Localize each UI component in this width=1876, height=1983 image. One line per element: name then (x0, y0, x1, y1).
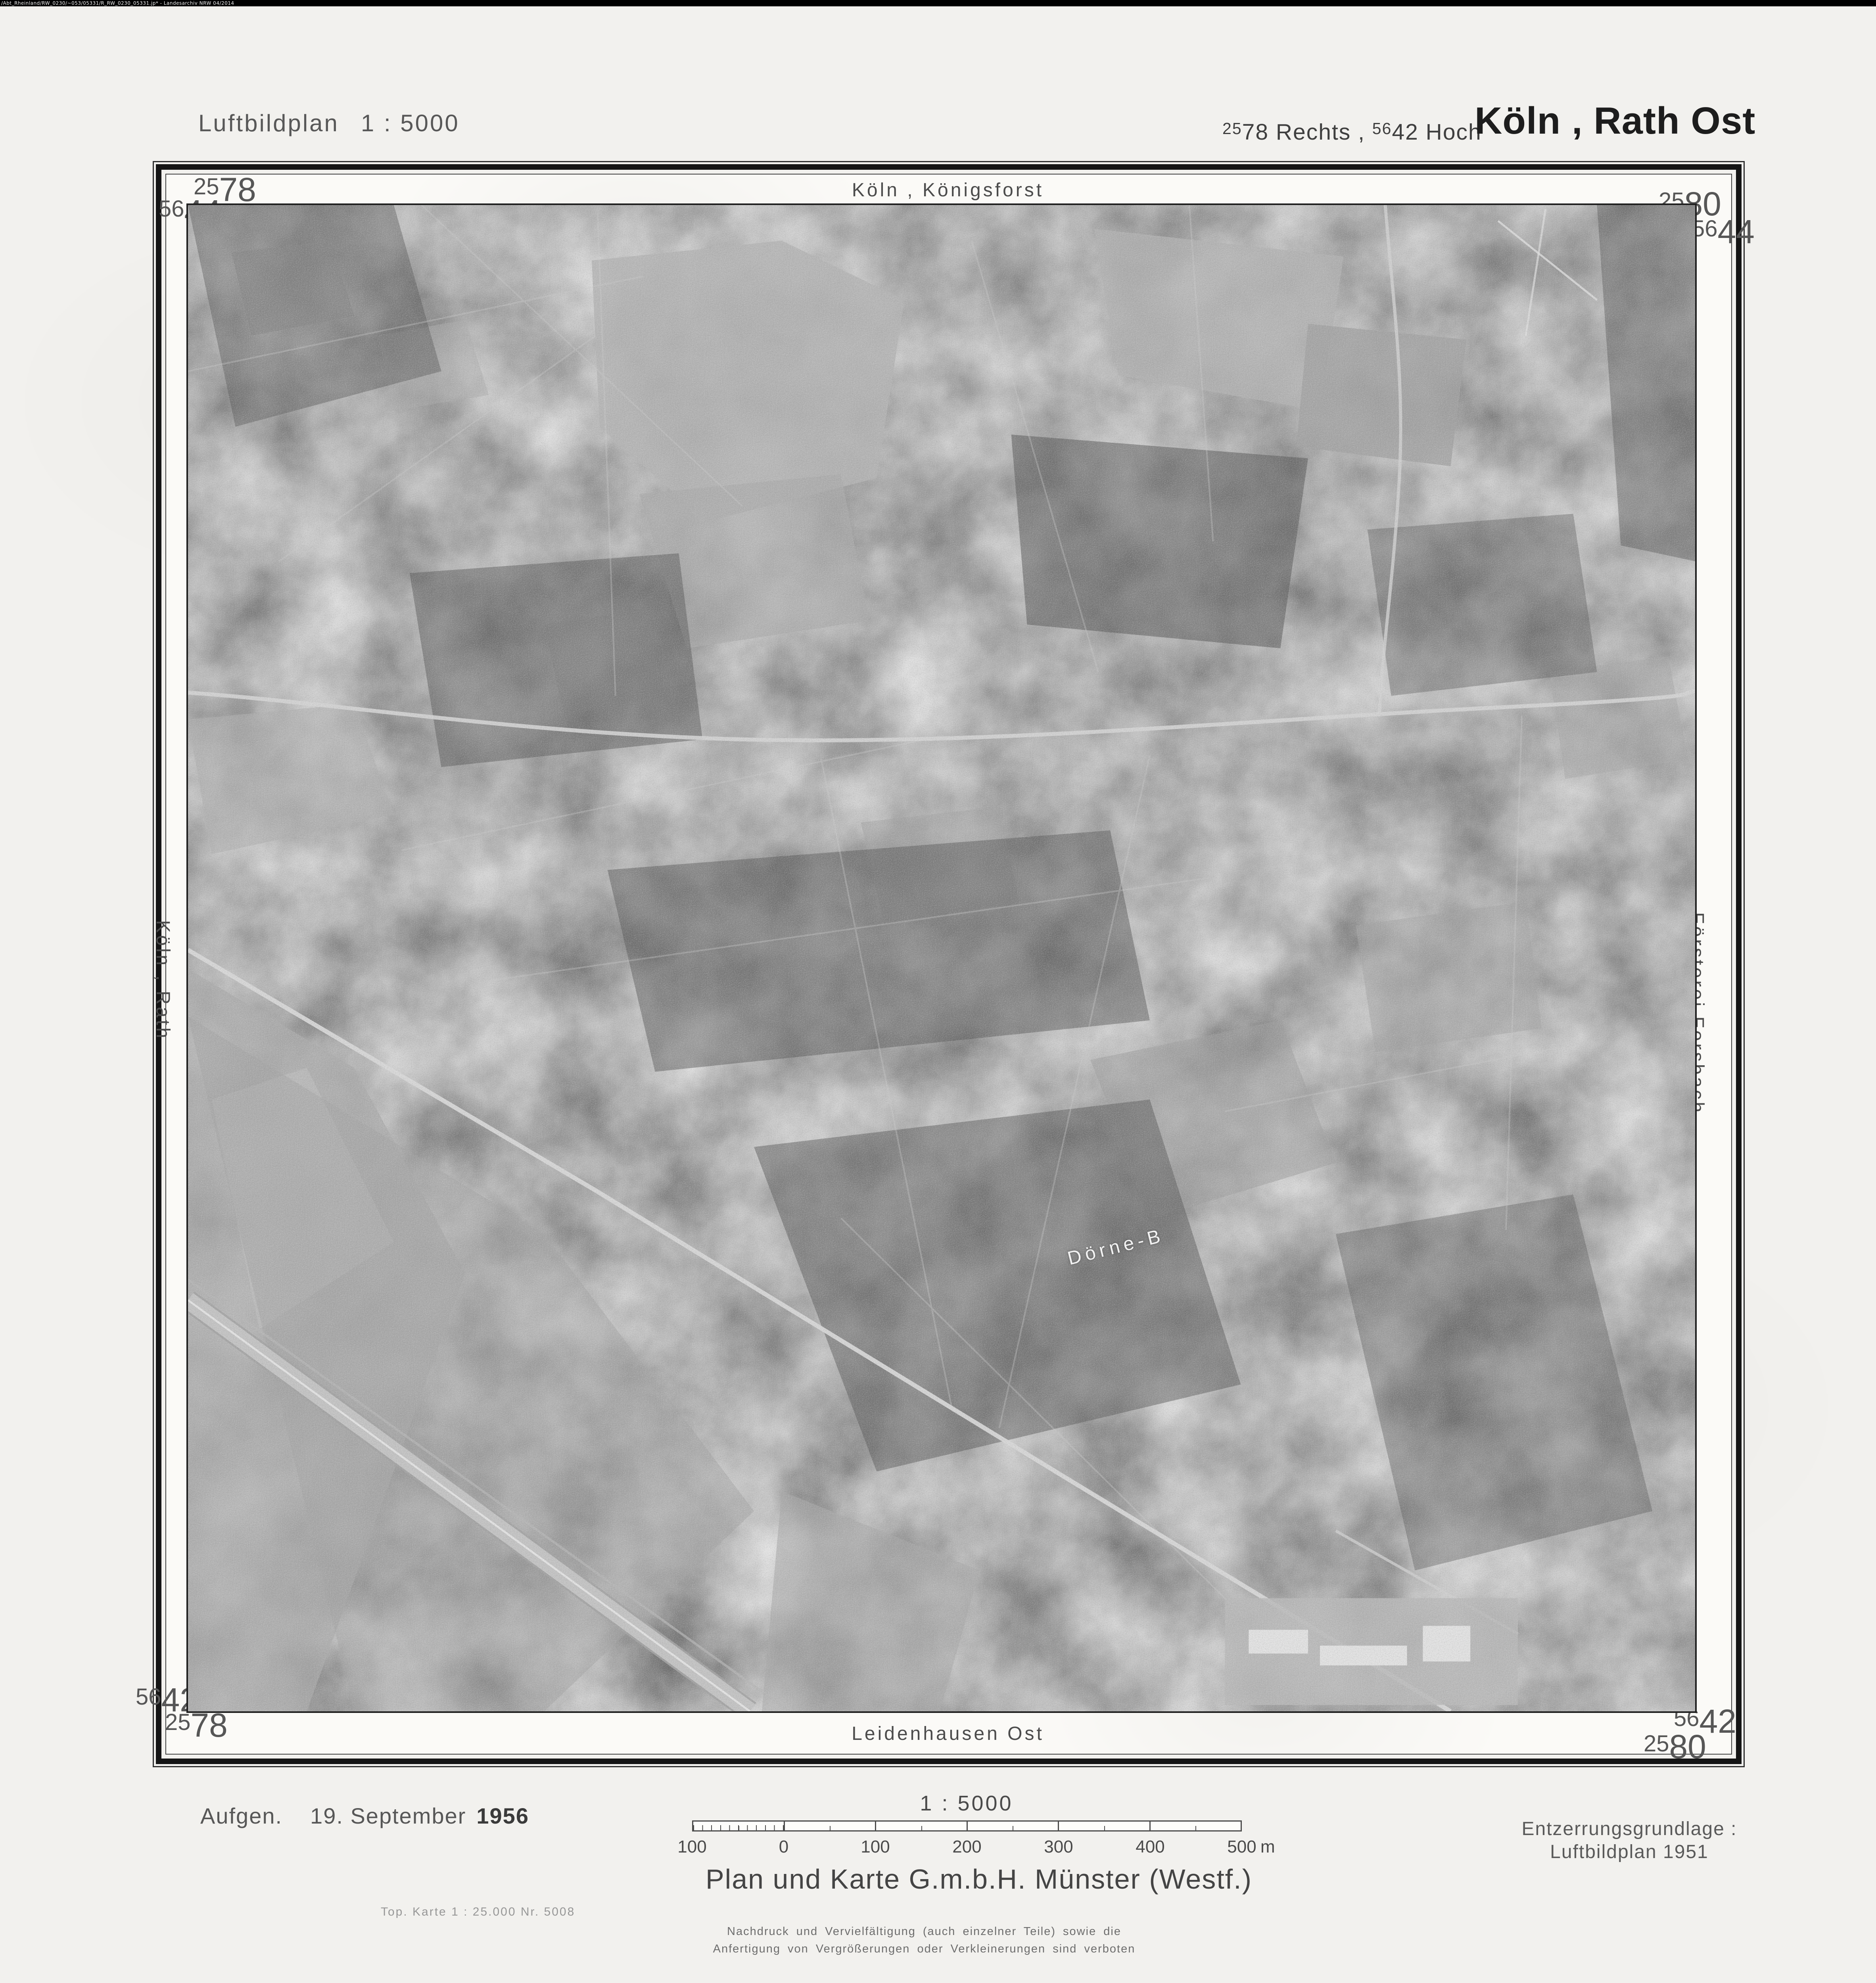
coord-sup: 56 (159, 196, 184, 222)
coord-main: 80 (1669, 1728, 1706, 1765)
scale-bar-segment (1059, 1822, 1151, 1830)
rectification-note-line2: Luftbildplan 1951 (1550, 1841, 1709, 1863)
edge-label-left: Köln , Rath (152, 920, 174, 1040)
survey-date: Aufgen.19. September1956 (200, 1803, 529, 1829)
topo-map-reference: Top. Karte 1 : 25.000 Nr. 5008 (381, 1905, 575, 1919)
aerial-photo: Dörne-B (186, 203, 1697, 1713)
corner-coord-bottom-right-rechts: 2580 (1644, 1728, 1706, 1766)
grid-hoch-sup: 56 (1372, 119, 1392, 138)
coord-sup: 25 (165, 1710, 190, 1735)
scale-tick-label: 200 (952, 1837, 981, 1857)
scale-bar-segment (968, 1822, 1059, 1830)
scale-tick-label: 400 (1136, 1837, 1164, 1857)
date-main: 19. September (310, 1803, 466, 1828)
publisher-imprint: Plan und Karte G.m.b.H. Münster (Westf.) (706, 1863, 1252, 1895)
scale-bar-segment (785, 1822, 877, 1830)
grid-rechts-main: 78 Rechts , (1242, 119, 1365, 145)
grid-hoch-main: 42 Hoch (1392, 119, 1481, 145)
scale-tick-label: 100 (861, 1837, 890, 1857)
scale-ratio-label: 1 : 5000 (920, 1791, 1013, 1816)
scan-info-bar: /Abt_Rheinland/RW_0230/~053/05331/R_RW_0… (0, 0, 1876, 6)
edge-label-top: Köln , Königsforst (852, 179, 1044, 201)
scale-bar-segment (693, 1822, 785, 1830)
coord-sup: 25 (1644, 1731, 1669, 1757)
scan-path-text: /Abt_Rheinland/RW_0230/~053/05331/R_RW_0… (1, 0, 234, 6)
scale-bar (692, 1820, 1242, 1831)
date-year: 1956 (476, 1803, 529, 1828)
series-scale: 1 : 5000 (361, 110, 460, 136)
grid-rechts-sup: 25 (1222, 119, 1242, 138)
scanned-map-sheet: { "scan_bar": { "path_text": "/Abt_Rhein… (0, 0, 1876, 1983)
copyright-notice: Nachdruck und Vervielfältigung (auch ein… (713, 1923, 1136, 1958)
copyright-line1: Nachdruck und Vervielfältigung (auch ein… (727, 1925, 1121, 1938)
coord-main: 44 (1717, 213, 1754, 250)
corner-coord-top-right-hoch: 5644 (1692, 213, 1755, 251)
coord-sup: 56 (136, 1684, 161, 1710)
aerial-photo-graphic (188, 205, 1695, 1711)
date-prefix: Aufgen. (200, 1803, 282, 1828)
grid-reference: 2578 Rechts , 5642 Hoch (1222, 119, 1482, 145)
scale-tick-label: 100 (677, 1837, 706, 1857)
rectification-note-line1: Entzerrungsgrundlage : (1522, 1818, 1737, 1840)
scale-bar-segment (1151, 1822, 1241, 1830)
film-grain (188, 205, 1695, 1711)
coord-main: 78 (219, 171, 256, 208)
scale-unit-label: m (1260, 1837, 1275, 1857)
scale-tick-label: 300 (1044, 1837, 1073, 1857)
scale-tick-label: 0 (779, 1837, 788, 1857)
scale-tick-label: 500 (1227, 1837, 1256, 1857)
edge-label-bottom: Leidenhausen Ost (852, 1723, 1044, 1745)
copyright-line2: Anfertigung von Vergrößerungen oder Verk… (713, 1943, 1136, 1955)
scale-bar-fine-ticks (693, 1825, 784, 1830)
series-label: Luftbildplan1 : 5000 (198, 109, 460, 137)
series-name: Luftbildplan (198, 110, 339, 136)
scale-bar-segment (876, 1822, 968, 1830)
sheet-title: Köln , Rath Ost (1475, 99, 1755, 143)
